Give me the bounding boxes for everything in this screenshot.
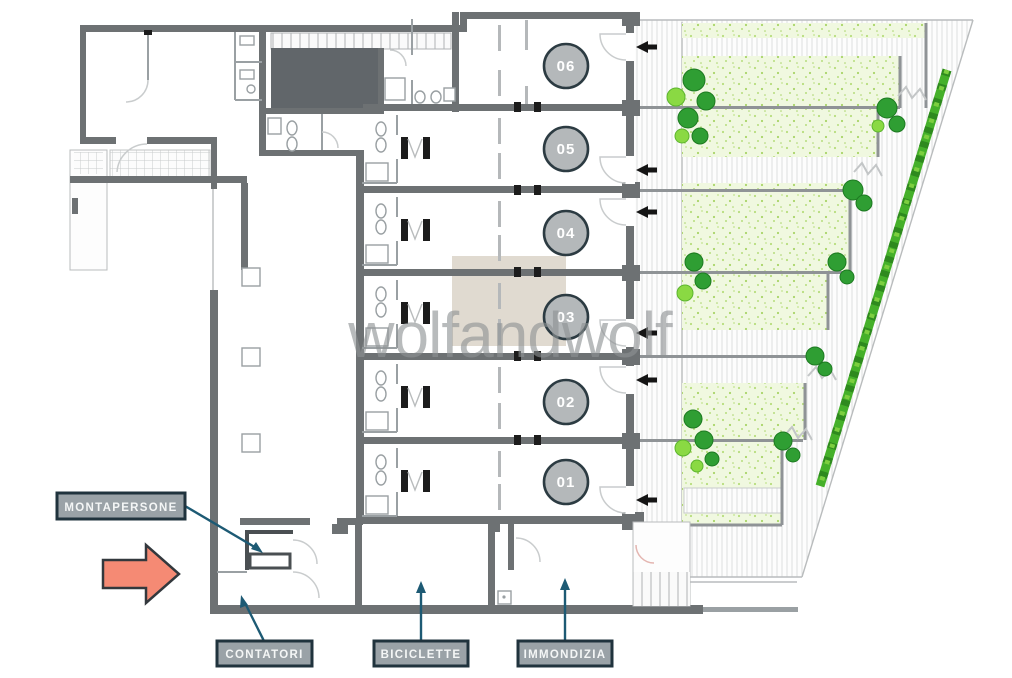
- unit-number-04: 04: [557, 225, 576, 242]
- garden-area: [633, 20, 973, 582]
- unit-number-05: 05: [557, 141, 576, 158]
- montapersone-label: MONTAPERSONE: [64, 502, 177, 514]
- immondizia-label: IMMONDIZIA: [524, 649, 607, 661]
- orange-right-arrow-icon: [103, 545, 179, 603]
- unit06-partitions: [525, 20, 528, 104]
- unit-number-01: 01: [557, 474, 576, 491]
- unit-number-02: 02: [557, 394, 576, 411]
- floor-plan-drawing: 06 05 04 03 02 01 wolfandwolf MONTAPERS: [0, 0, 1012, 678]
- stair-treads: [271, 33, 451, 49]
- contatori-label: CONTATORI: [225, 649, 303, 661]
- bottom-strip: [217, 522, 690, 606]
- unit-number-06: 06: [557, 58, 576, 75]
- floor-plan-page: 06 05 04 03 02 01 wolfandwolf MONTAPERS: [0, 0, 1012, 678]
- unit-badge-02: 02: [544, 380, 588, 424]
- unit-badge-05: 05: [544, 127, 588, 171]
- goods-lift: [250, 554, 290, 568]
- unit-badge-01: 01: [544, 460, 588, 504]
- watermark-text: wolfandwolf: [347, 299, 673, 371]
- unit-badge-06: 06: [544, 44, 588, 88]
- unit-badge-04: 04: [544, 211, 588, 255]
- biciclette-label: BICICLETTE: [381, 649, 462, 661]
- hall-columns: [242, 268, 260, 452]
